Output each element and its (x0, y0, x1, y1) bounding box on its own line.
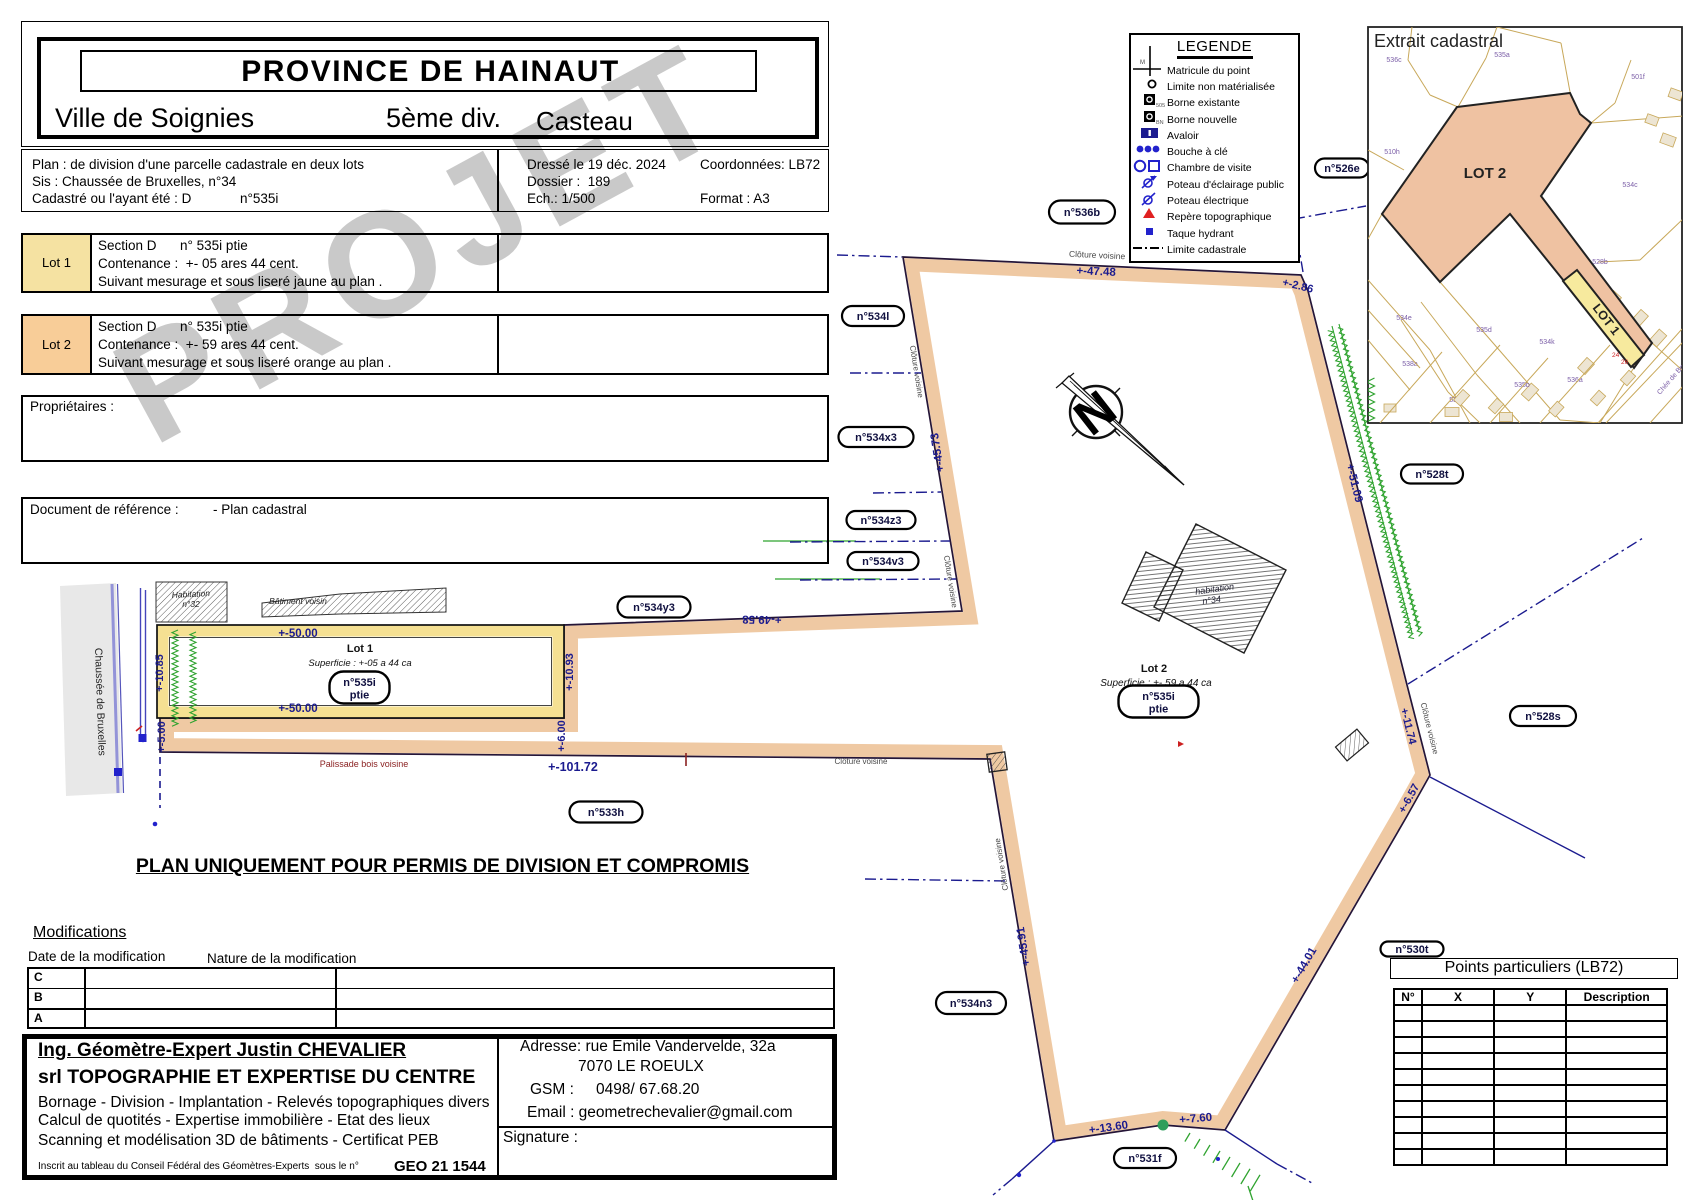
svg-text:+-6.57: +-6.57 (1396, 782, 1422, 815)
svg-text:n°534y3: n°534y3 (633, 602, 675, 614)
svg-text:n°534z3: n°534z3 (860, 515, 901, 527)
svg-text:n°526e: n°526e (1324, 163, 1360, 175)
svg-text:24: 24 (1612, 352, 1620, 359)
svg-text:n°531f: n°531f (1128, 1153, 1161, 1165)
svg-text:+-10.85: +-10.85 (154, 654, 166, 692)
svg-text:536c: 536c (1386, 57, 1402, 64)
svg-text:Lot 2: Lot 2 (1141, 663, 1167, 675)
svg-text:+-101.72: +-101.72 (548, 760, 598, 774)
svg-text:538a: 538a (1402, 361, 1418, 368)
svg-text:n°535i: n°535i (343, 677, 376, 689)
svg-text:n°530t: n°530t (1395, 944, 1428, 956)
svg-text:n°533h: n°533h (588, 807, 624, 819)
svg-text:+-49.58: +-49.58 (742, 613, 782, 626)
svg-text:534e: 534e (1396, 315, 1412, 322)
svg-text:535b: 535b (1514, 382, 1530, 389)
svg-text:+-10.93: +-10.93 (564, 653, 576, 691)
svg-text:501f: 501f (1631, 74, 1645, 81)
svg-text:+-5.00: +-5.00 (156, 721, 168, 753)
svg-text:n°32: n°32 (182, 599, 200, 609)
svg-text:LOT 2: LOT 2 (1464, 165, 1507, 182)
svg-text:Superficie : +-05 a 44 ca: Superficie : +-05 a 44 ca (308, 658, 411, 669)
svg-text:BN: BN (1156, 120, 1164, 125)
svg-text:534c: 534c (1622, 182, 1638, 189)
svg-text:n°534l: n°534l (857, 311, 890, 323)
svg-text:Lot 1: Lot 1 (347, 643, 373, 655)
svg-text:n°528s: n°528s (1525, 711, 1561, 723)
svg-text:Palissade bois voisine: Palissade bois voisine (320, 759, 409, 769)
svg-text:26: 26 (1621, 359, 1629, 366)
svg-text:n°534v3: n°534v3 (862, 556, 904, 568)
svg-text:n°534x3: n°534x3 (855, 432, 897, 444)
svg-text:505: 505 (1156, 103, 1165, 108)
svg-text:535a: 535a (1494, 52, 1510, 59)
svg-text:528b: 528b (1592, 259, 1608, 266)
svg-text:+-50.00: +-50.00 (278, 703, 317, 715)
svg-text:ptie: ptie (350, 690, 370, 702)
svg-text:510h: 510h (1384, 149, 1400, 156)
svg-text:+-47.48: +-47.48 (1076, 265, 1116, 279)
svg-text:Extrait cadastral: Extrait cadastral (1374, 31, 1503, 51)
svg-text:Bâtiment voisin: Bâtiment voisin (269, 596, 327, 606)
svg-text:534k: 534k (1539, 339, 1555, 346)
svg-text:M: M (1140, 60, 1145, 66)
svg-text:535d: 535d (1476, 327, 1492, 334)
svg-text:n°534n3: n°534n3 (950, 998, 992, 1010)
svg-text:n°528t: n°528t (1415, 469, 1448, 481)
svg-text:+-6.00: +-6.00 (556, 720, 568, 752)
svg-text:ptie: ptie (1149, 704, 1169, 716)
svg-text:+-50.00: +-50.00 (278, 628, 317, 640)
svg-text:n°535i: n°535i (1142, 691, 1175, 703)
svg-text:n°536b: n°536b (1064, 207, 1100, 219)
svg-text:Clôture voisine: Clôture voisine (1069, 249, 1126, 262)
svg-text:Clôture voisine: Clôture voisine (835, 757, 888, 766)
